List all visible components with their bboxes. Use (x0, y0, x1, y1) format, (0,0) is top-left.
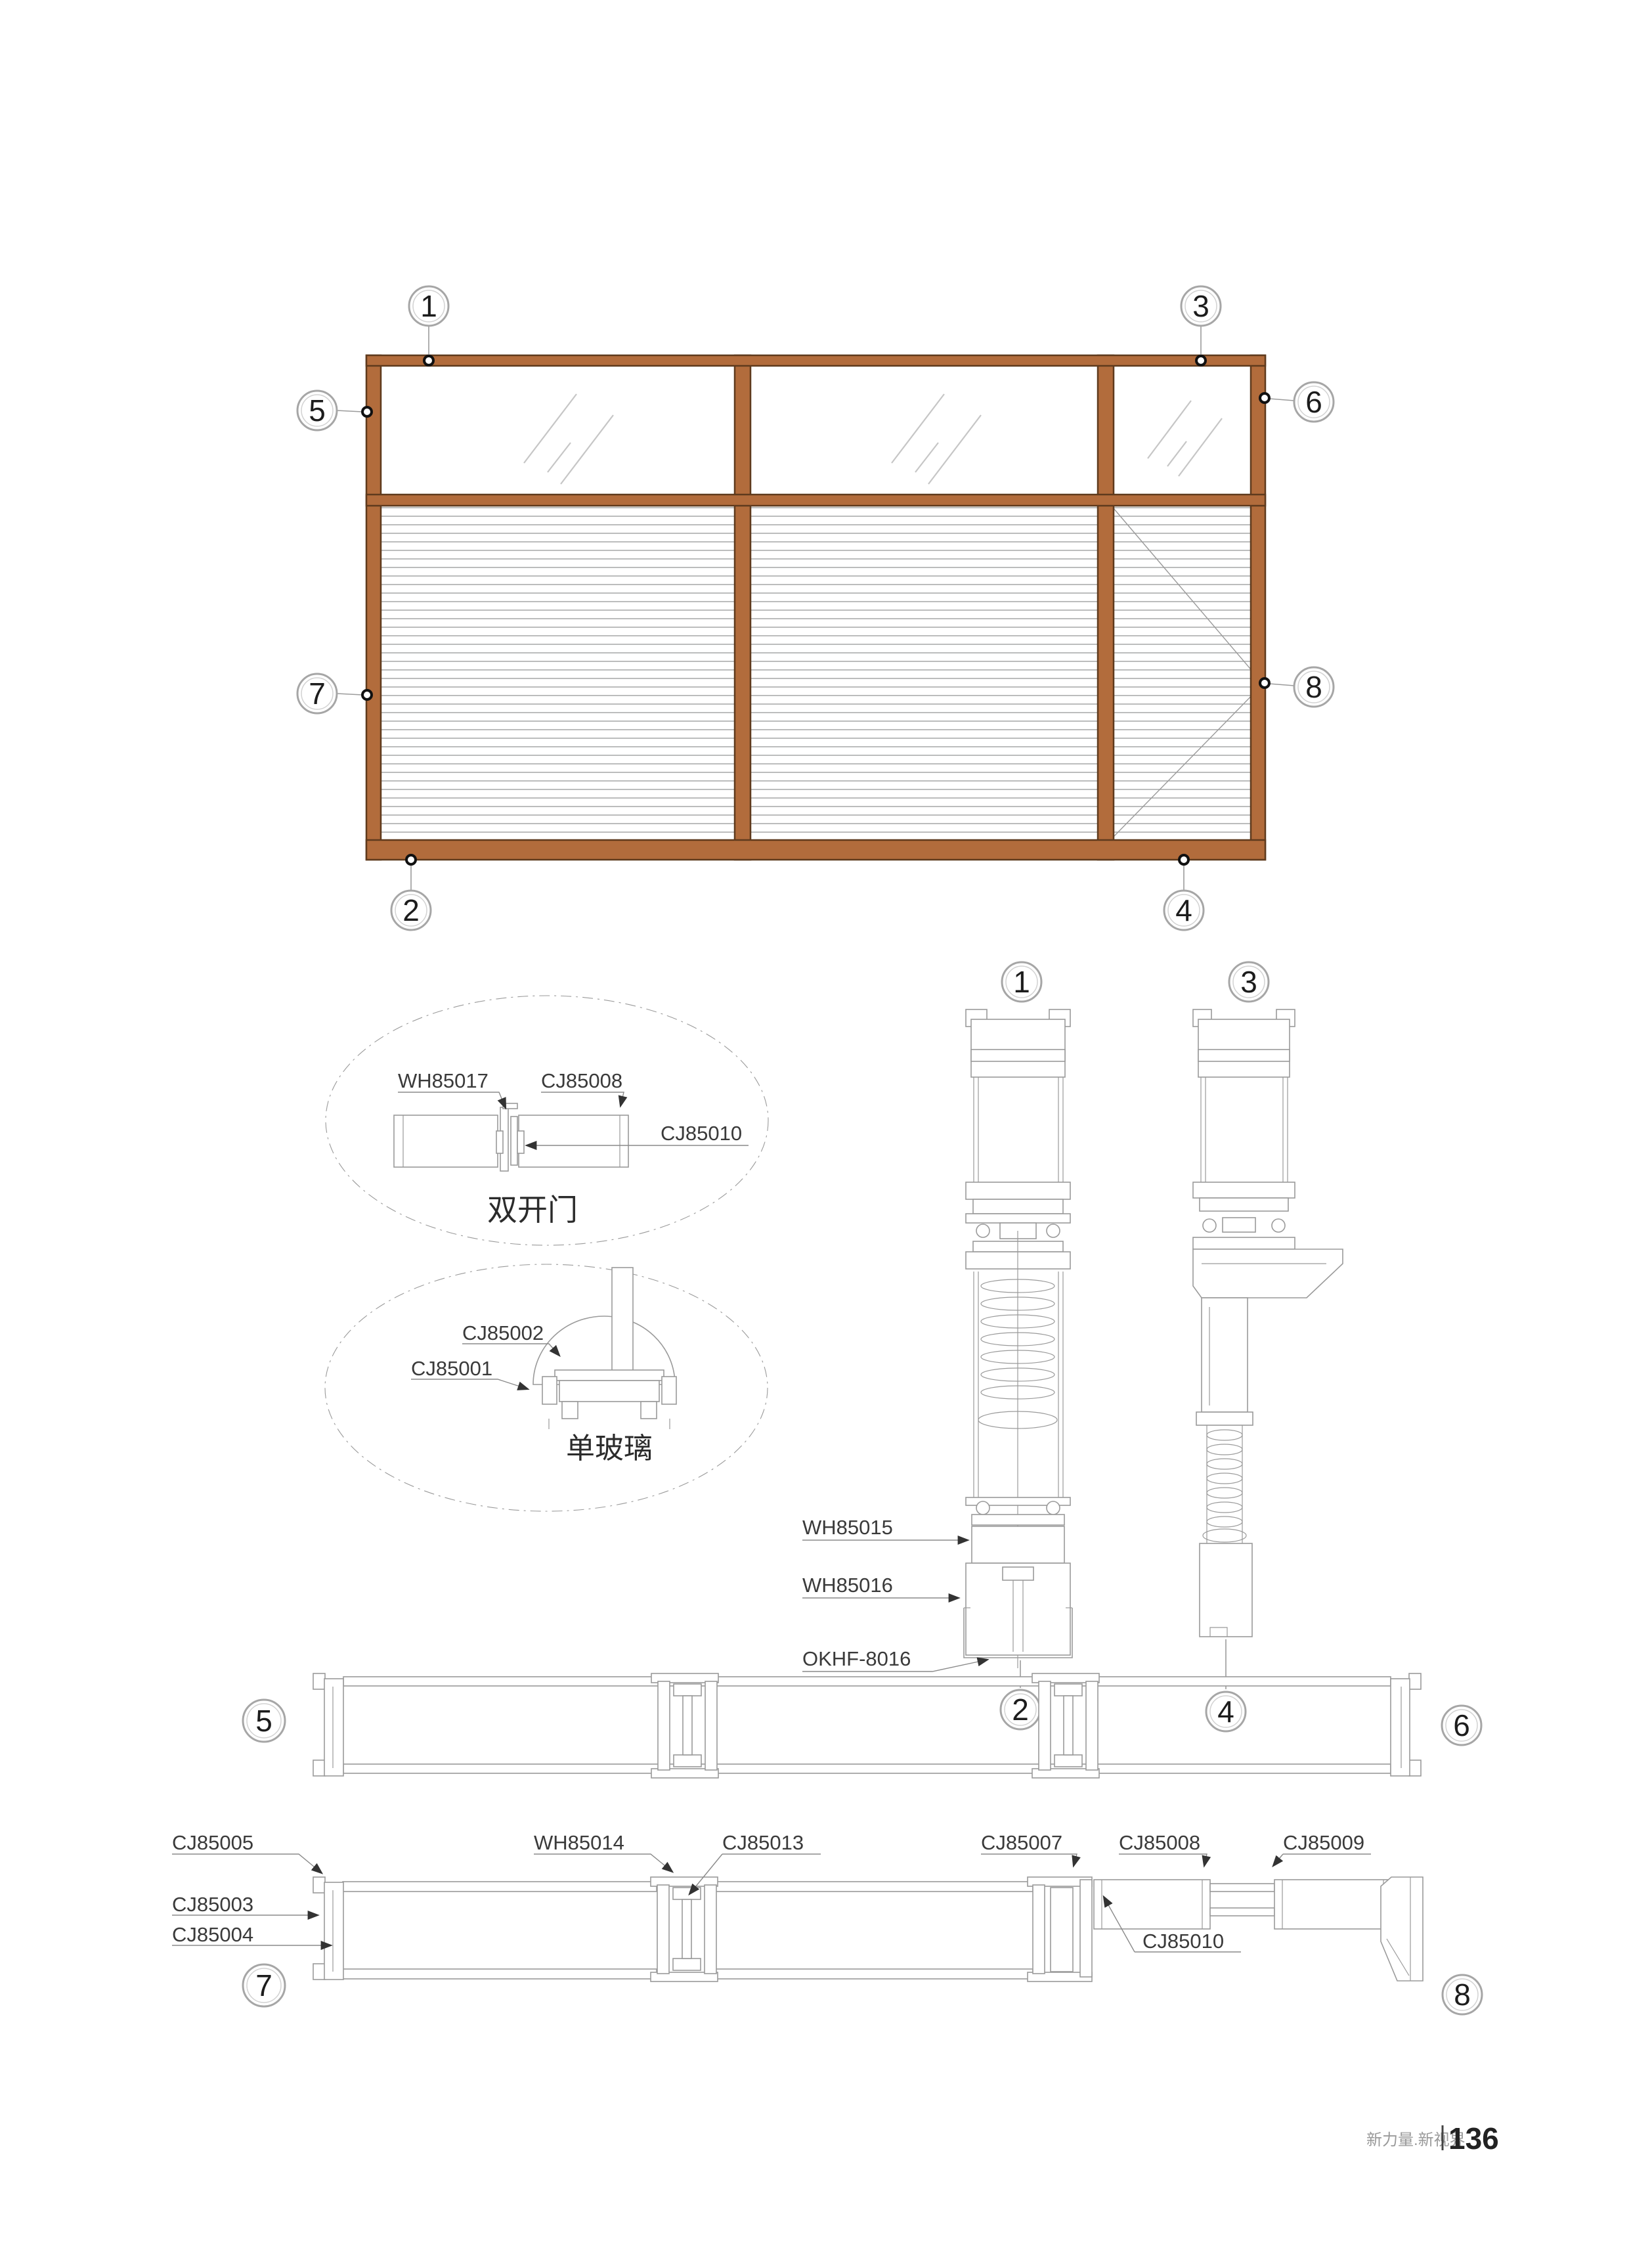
part-label: CJ85008 (1119, 1831, 1200, 1854)
glass-marks (524, 394, 1222, 484)
part-label: WH85017 (398, 1069, 489, 1092)
part-label: CJ85005 (172, 1831, 253, 1854)
callout-5-section: 5 (243, 1700, 285, 1742)
callout-number: 6 (1305, 385, 1322, 419)
callout-1-section: 1 (1002, 962, 1041, 1002)
detail-single-glass: CJ85002 CJ85001 单玻璃 (325, 1264, 768, 1511)
callout-7-section: 7 (243, 1964, 285, 2006)
callout-2-elevation: 2 (391, 855, 431, 930)
elevation-drawing: 1 3 5 6 7 8 (297, 286, 1334, 930)
row2-door-jamb (1028, 1877, 1092, 1981)
part-label: WH85016 (802, 1574, 893, 1597)
callout-number: 3 (1192, 289, 1209, 323)
callout-number: 8 (1454, 1978, 1471, 2012)
frame-mullion-1 (735, 355, 750, 860)
callout-number: 5 (309, 393, 326, 428)
detail-caption: 双开门 (487, 1193, 578, 1227)
callout-8-elevation: 8 (1260, 667, 1334, 707)
wh85015-profile (972, 1526, 1064, 1563)
callout-number: 1 (420, 289, 437, 323)
footer: 新力量.新视界 136 (1366, 2121, 1499, 2156)
louver-panels (381, 507, 1251, 840)
row2-left-jamb (313, 1877, 343, 1980)
row2-mullion (651, 1877, 718, 1981)
callout-8-section: 8 (1443, 1975, 1482, 2014)
callout-number: 7 (255, 1968, 272, 2003)
callout-number: 5 (255, 1704, 272, 1738)
part-label: CJ85007 (981, 1831, 1062, 1854)
callout-5-elevation: 5 (297, 391, 372, 430)
footer-page-number: 136 (1448, 2121, 1499, 2156)
part-label: CJ85010 (1142, 1930, 1224, 1953)
row1-left-jamb (313, 1673, 343, 1776)
part-label: OKHF-8016 (802, 1647, 911, 1670)
callout-6-section: 6 (1442, 1706, 1481, 1745)
callout-number: 7 (309, 676, 326, 711)
callout-3-elevation: 3 (1181, 286, 1221, 365)
part-label: CJ85009 (1283, 1831, 1364, 1854)
part-label: CJ85004 (172, 1923, 253, 1946)
part-label: WH85014 (534, 1831, 624, 1854)
row1-mullion-a (651, 1673, 718, 1778)
callout-number: 4 (1217, 1694, 1234, 1729)
row2-door-leaves (1094, 1880, 1391, 1929)
part-label: CJ85008 (541, 1069, 622, 1092)
callout-1-elevation: 1 (409, 286, 448, 365)
closer-coil-small (1203, 1430, 1246, 1542)
callout-number: 3 (1240, 965, 1257, 999)
callout-number: 2 (402, 893, 420, 927)
row2-right-jamb (1381, 1877, 1423, 1981)
vertical-section-labels: WH85015 WH85016 OKHF-8016 (802, 1516, 988, 1671)
frame-mullion-2 (1098, 355, 1114, 860)
callout-number: 6 (1453, 1708, 1470, 1742)
callout-number: 1 (1013, 965, 1030, 999)
callout-3-section: 3 (1229, 962, 1269, 1002)
drawing-sheet: 1 3 5 6 7 8 (0, 0, 1652, 2258)
callout-number: 2 (1012, 1693, 1029, 1727)
part-label: CJ85001 (411, 1357, 492, 1380)
callout-7-elevation: 7 (297, 674, 372, 713)
section-horizontal-top: 5 6 (243, 1673, 1481, 1778)
row1-mullion-b (1032, 1673, 1099, 1778)
part-label: CJ85002 (462, 1321, 544, 1344)
detail-double-door: WH85017 CJ85008 CJ85010 双开门 (326, 996, 768, 1245)
section-vertical-1: 1 (964, 962, 1072, 1729)
callout-number: 8 (1305, 670, 1322, 704)
frame-head (366, 355, 1265, 366)
frame-sill (366, 840, 1265, 860)
part-label: CJ85013 (722, 1831, 804, 1854)
section-vertical-3: 3 (1193, 962, 1343, 1731)
part-label: WH85015 (802, 1516, 893, 1539)
catalog-page: 1 3 5 6 7 8 (0, 0, 1652, 2258)
callout-number: 4 (1175, 893, 1192, 927)
section-horizontal-bottom: 7 8 CJ85005 CJ85003 CJ85004 WH85014 CJ85… (172, 1831, 1482, 2014)
part-label: CJ85003 (172, 1893, 253, 1916)
row1-right-jamb (1391, 1673, 1421, 1776)
part-label: CJ85010 (661, 1122, 742, 1145)
frame-right-jamb (1251, 355, 1265, 860)
frame-mid-rail (366, 495, 1265, 506)
callout-2-section: 2 (1001, 1660, 1040, 1729)
detail-caption: 单玻璃 (566, 1432, 653, 1465)
callout-4-elevation: 4 (1164, 855, 1204, 930)
frame-left-jamb (366, 355, 381, 860)
callout-6-elevation: 6 (1260, 382, 1334, 422)
